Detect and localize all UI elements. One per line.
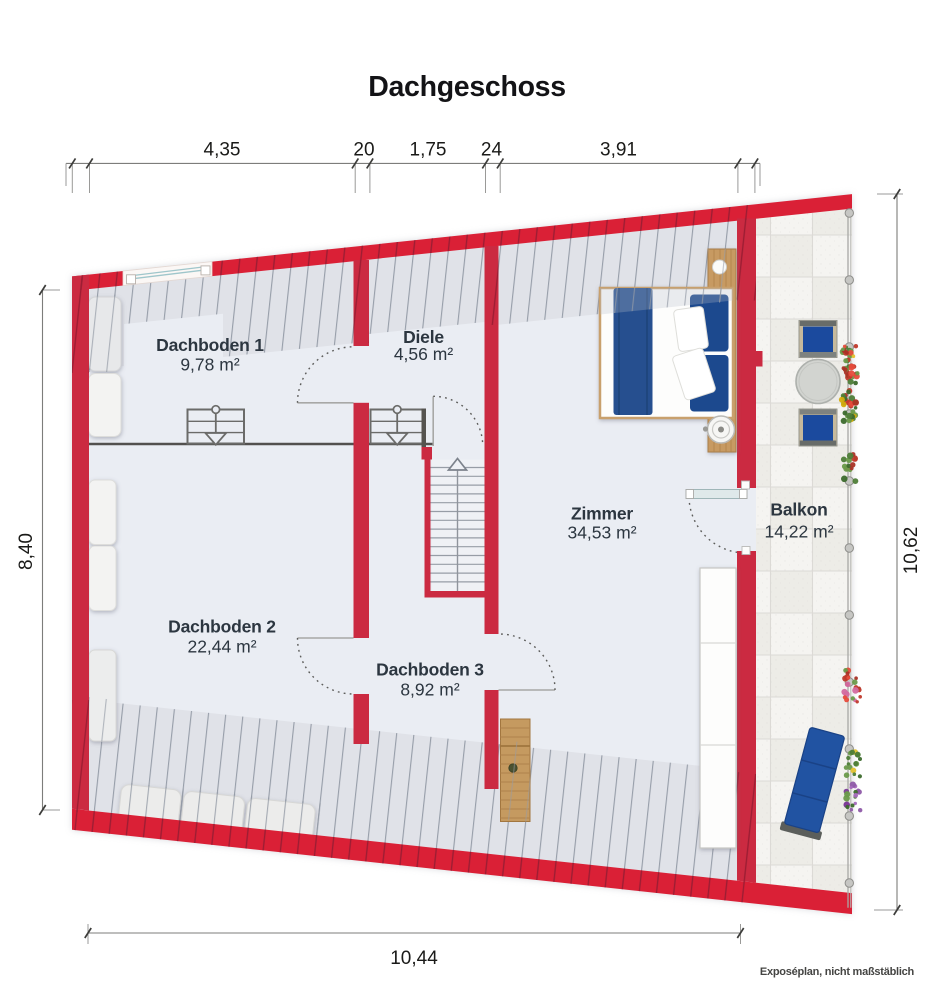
svg-text:Dachboden 3: Dachboden 3 xyxy=(376,660,484,680)
svg-text:Zimmer: Zimmer xyxy=(571,504,633,524)
svg-text:4,35: 4,35 xyxy=(204,140,241,161)
svg-text:8,92 m²: 8,92 m² xyxy=(400,680,459,700)
svg-text:Dachboden 1: Dachboden 1 xyxy=(156,335,264,355)
svg-text:8,40: 8,40 xyxy=(16,533,37,570)
svg-text:34,53 m²: 34,53 m² xyxy=(567,523,636,543)
svg-text:10,62: 10,62 xyxy=(901,527,922,575)
svg-text:Balkon: Balkon xyxy=(770,500,827,520)
svg-text:Exposéplan, nicht maßstäblich: Exposéplan, nicht maßstäblich xyxy=(760,966,915,978)
svg-text:14,22 m²: 14,22 m² xyxy=(764,522,833,542)
svg-text:1,75: 1,75 xyxy=(410,140,447,161)
svg-text:22,44 m²: 22,44 m² xyxy=(187,637,256,657)
svg-text:20: 20 xyxy=(353,140,374,161)
svg-text:Dachgeschoss: Dachgeschoss xyxy=(368,71,566,103)
svg-text:9,78 m²: 9,78 m² xyxy=(180,355,239,375)
svg-text:3,91: 3,91 xyxy=(600,140,637,161)
svg-text:24: 24 xyxy=(481,140,503,161)
svg-text:Dachboden 2: Dachboden 2 xyxy=(168,617,276,637)
svg-text:4,56 m²: 4,56 m² xyxy=(394,344,453,364)
svg-text:10,44: 10,44 xyxy=(390,948,438,969)
